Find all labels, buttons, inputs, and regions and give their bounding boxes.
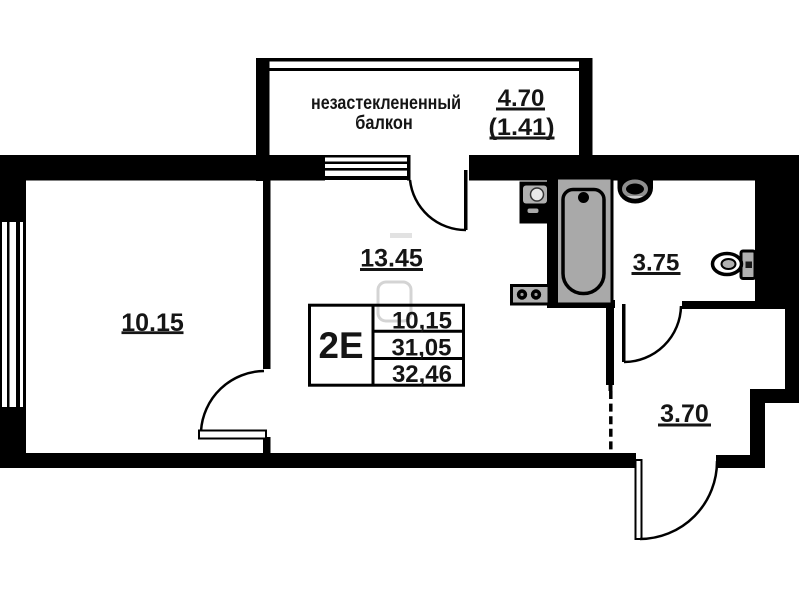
svg-text:2Е: 2Е [319,325,364,366]
svg-text:10,15: 10,15 [392,308,452,335]
svg-text:31,05: 31,05 [391,335,451,362]
svg-text:32,46: 32,46 [392,361,452,388]
svg-text:незастеклененный: незастеклененный [311,92,461,114]
svg-text:балкон: балкон [355,112,413,134]
